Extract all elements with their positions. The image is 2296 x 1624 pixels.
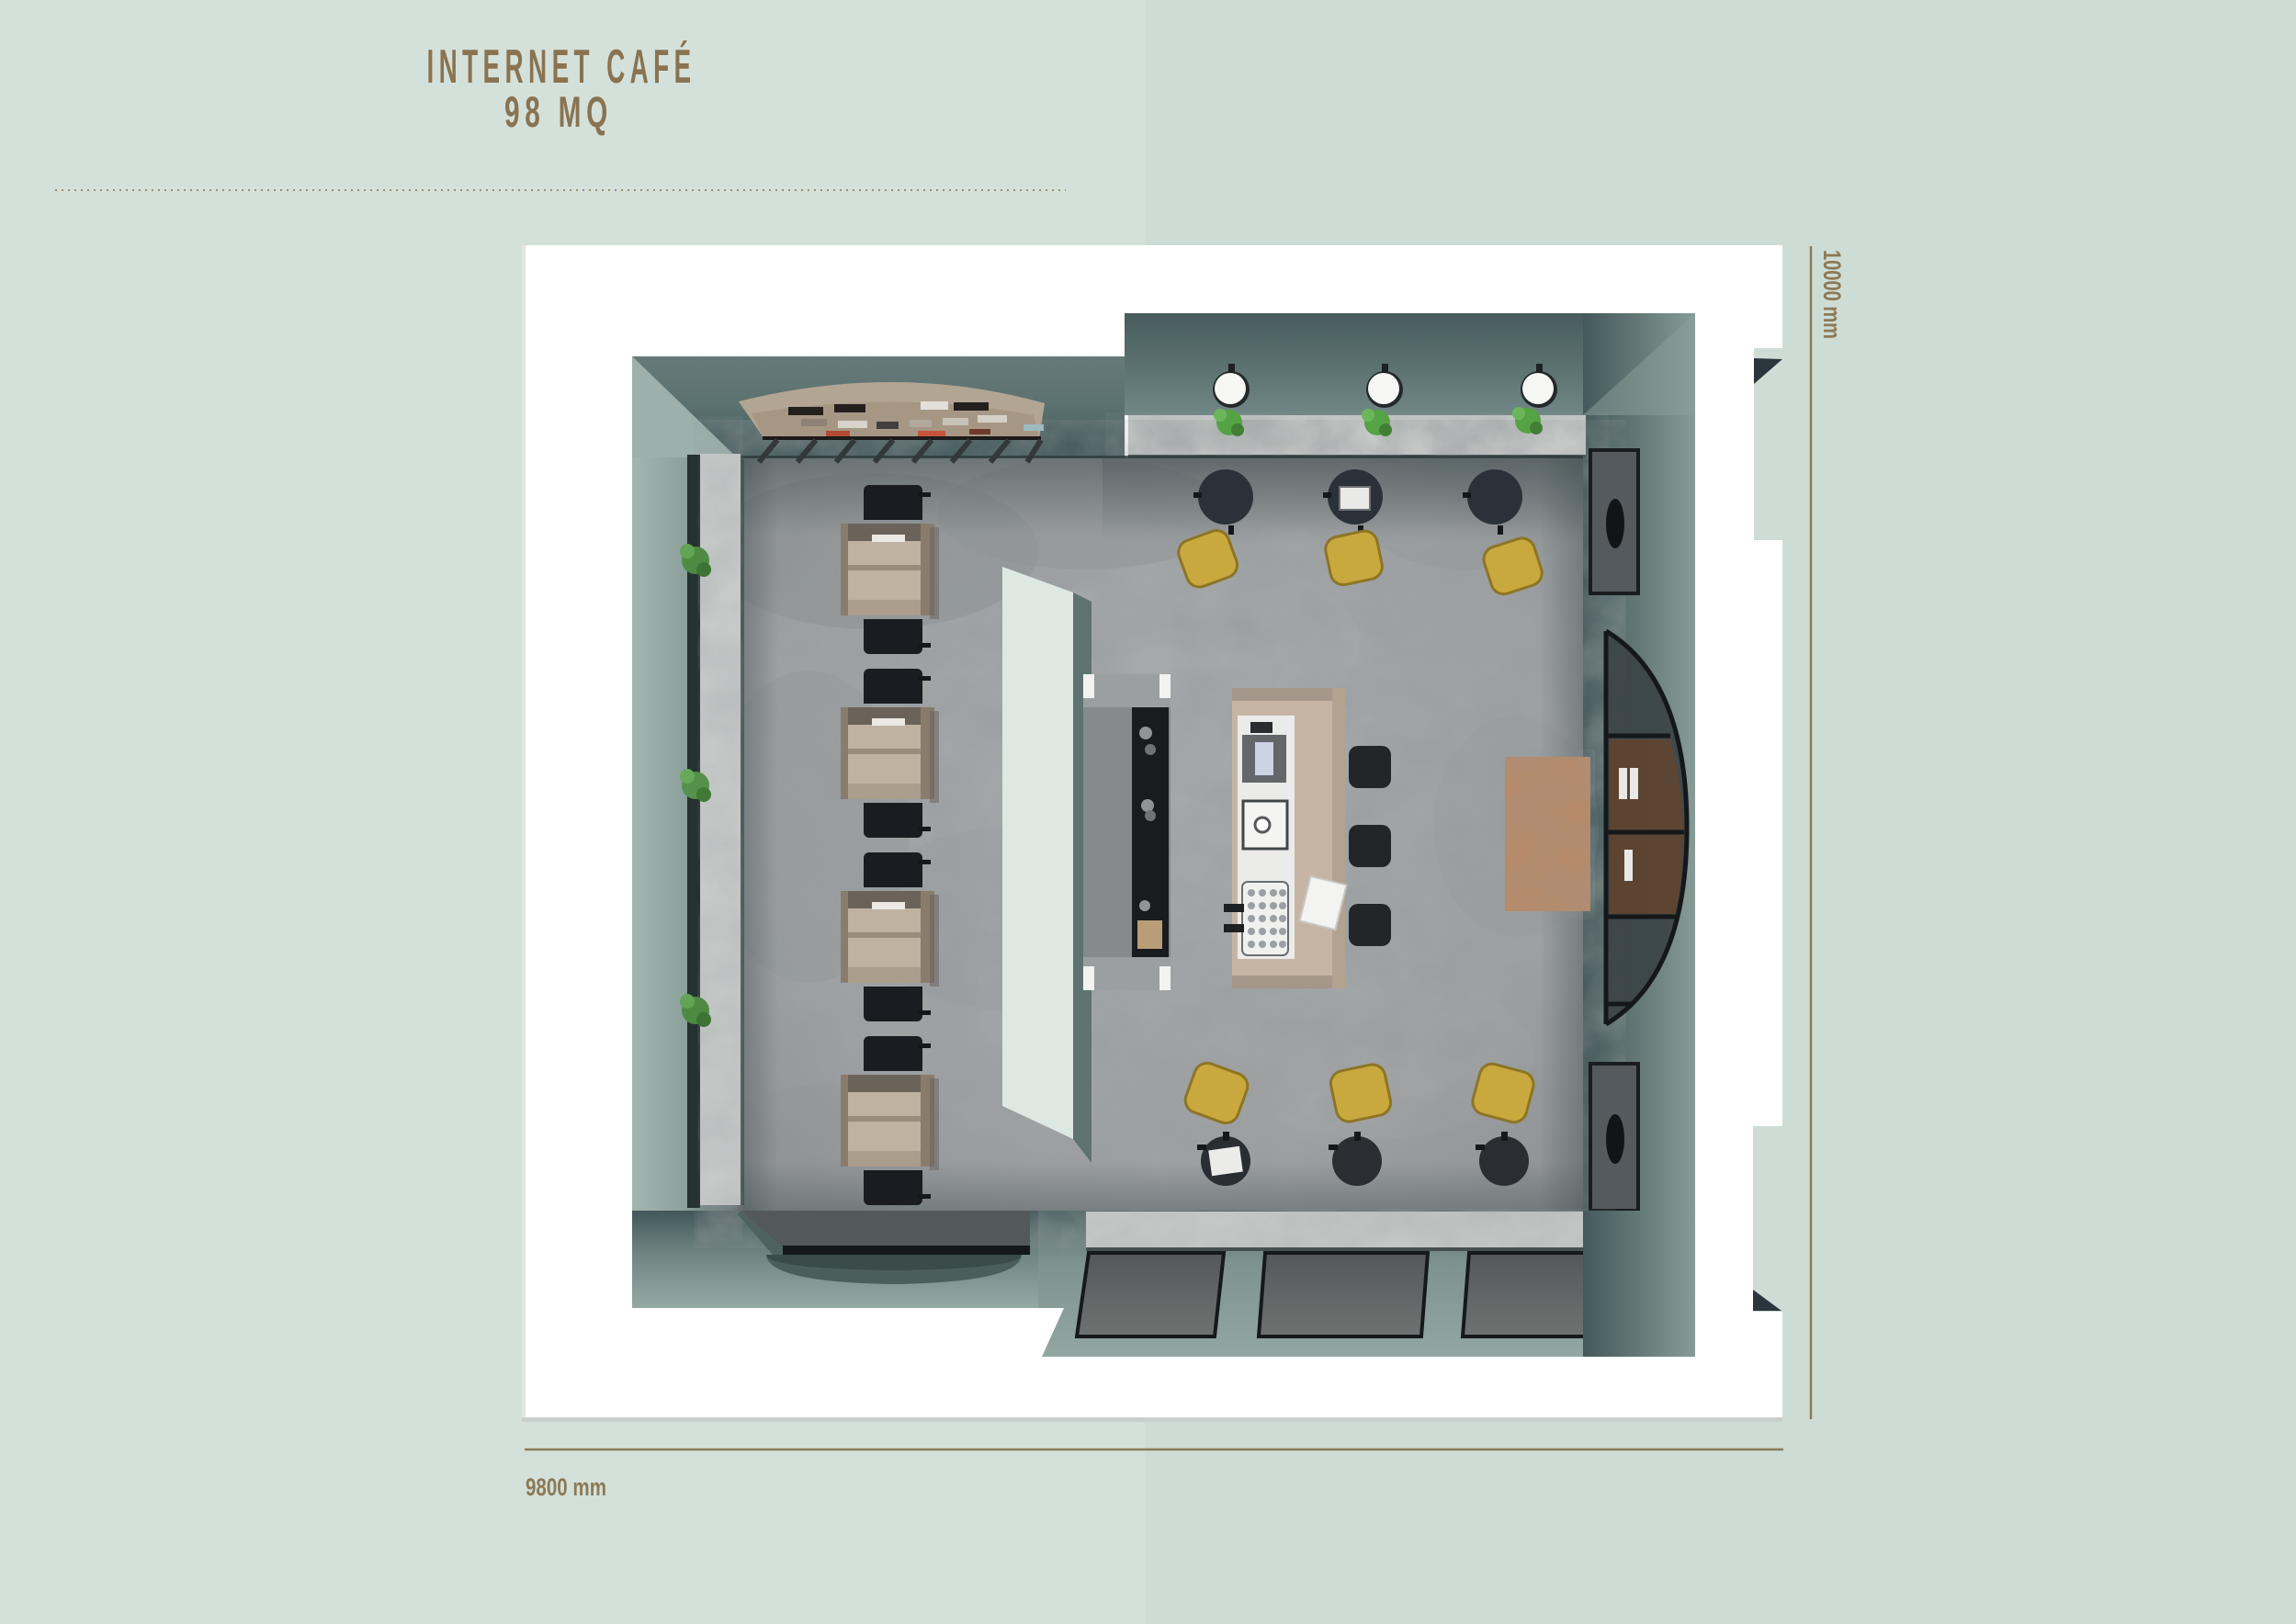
svg-text:98 MQ: 98 MQ: [504, 87, 613, 136]
svg-text:10000 mm: 10000 mm: [1818, 250, 1846, 339]
svg-text:INTERNET CAFÉ: INTERNET CAFÉ: [427, 40, 696, 94]
svg-text:9800 mm: 9800 mm: [526, 1473, 606, 1501]
